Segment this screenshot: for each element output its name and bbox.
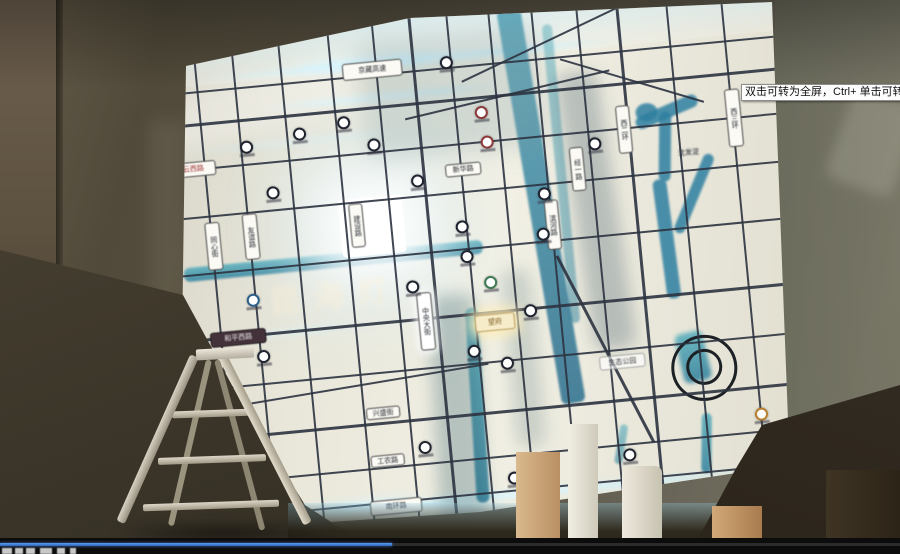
ladder-top-cap	[196, 346, 254, 360]
road-label: 友谊路	[241, 213, 260, 260]
poi-marker	[246, 293, 260, 307]
watermark-glyph	[26, 548, 35, 554]
poi-marker	[754, 407, 768, 421]
poi-marker	[367, 138, 381, 152]
step-ladder	[110, 340, 345, 545]
map-glow-text: 昆海灯	[268, 265, 404, 321]
watermark-glyph	[2, 548, 12, 554]
poi-marker	[623, 448, 637, 462]
watermark-glyph	[57, 548, 65, 554]
watermark-glyph	[70, 548, 76, 554]
poi-marker	[418, 440, 432, 454]
fullscreen-tooltip: 双击可转为全屏，Ctrl+ 单击可转为	[741, 84, 900, 101]
road-label: 祥云西路	[180, 160, 217, 180]
road-label: 西二环	[615, 105, 634, 154]
poi-marker	[523, 304, 537, 318]
poi-marker	[239, 140, 253, 154]
road-label: 生态公园	[599, 353, 646, 371]
video-frame[interactable]: 昆海灯 京藏高速祥云西路同心街友谊路和平西路中央大街望府新华路建设路滨河路经一路…	[0, 0, 900, 554]
watermark-glyph	[40, 548, 52, 554]
poi-marker	[292, 127, 306, 141]
seek-bar-track[interactable]	[0, 543, 900, 546]
road-label: 同心街	[204, 222, 224, 271]
ladder-step-2	[158, 454, 266, 465]
poi-marker	[406, 280, 420, 294]
seek-bar-progress[interactable]	[0, 543, 392, 546]
watermark-glyph	[15, 548, 23, 554]
ladder-step-1	[172, 409, 254, 419]
lake-channel	[652, 178, 682, 299]
poi-marker	[484, 275, 498, 289]
poi-marker	[460, 250, 474, 264]
poi-marker	[266, 186, 280, 200]
poi-marker	[337, 116, 351, 130]
poi-marker	[410, 174, 424, 188]
video-controls-bar[interactable]	[0, 538, 900, 554]
road-label: 沈发淀	[671, 146, 706, 160]
white-pillar-1	[568, 424, 598, 554]
poi-marker	[467, 344, 481, 358]
lake-arm-right	[673, 152, 716, 235]
ladder-front-left-rail	[116, 354, 198, 524]
road-label: 新华路	[445, 161, 482, 177]
road-label: 兴盛街	[366, 405, 401, 420]
poi-marker	[500, 356, 514, 370]
